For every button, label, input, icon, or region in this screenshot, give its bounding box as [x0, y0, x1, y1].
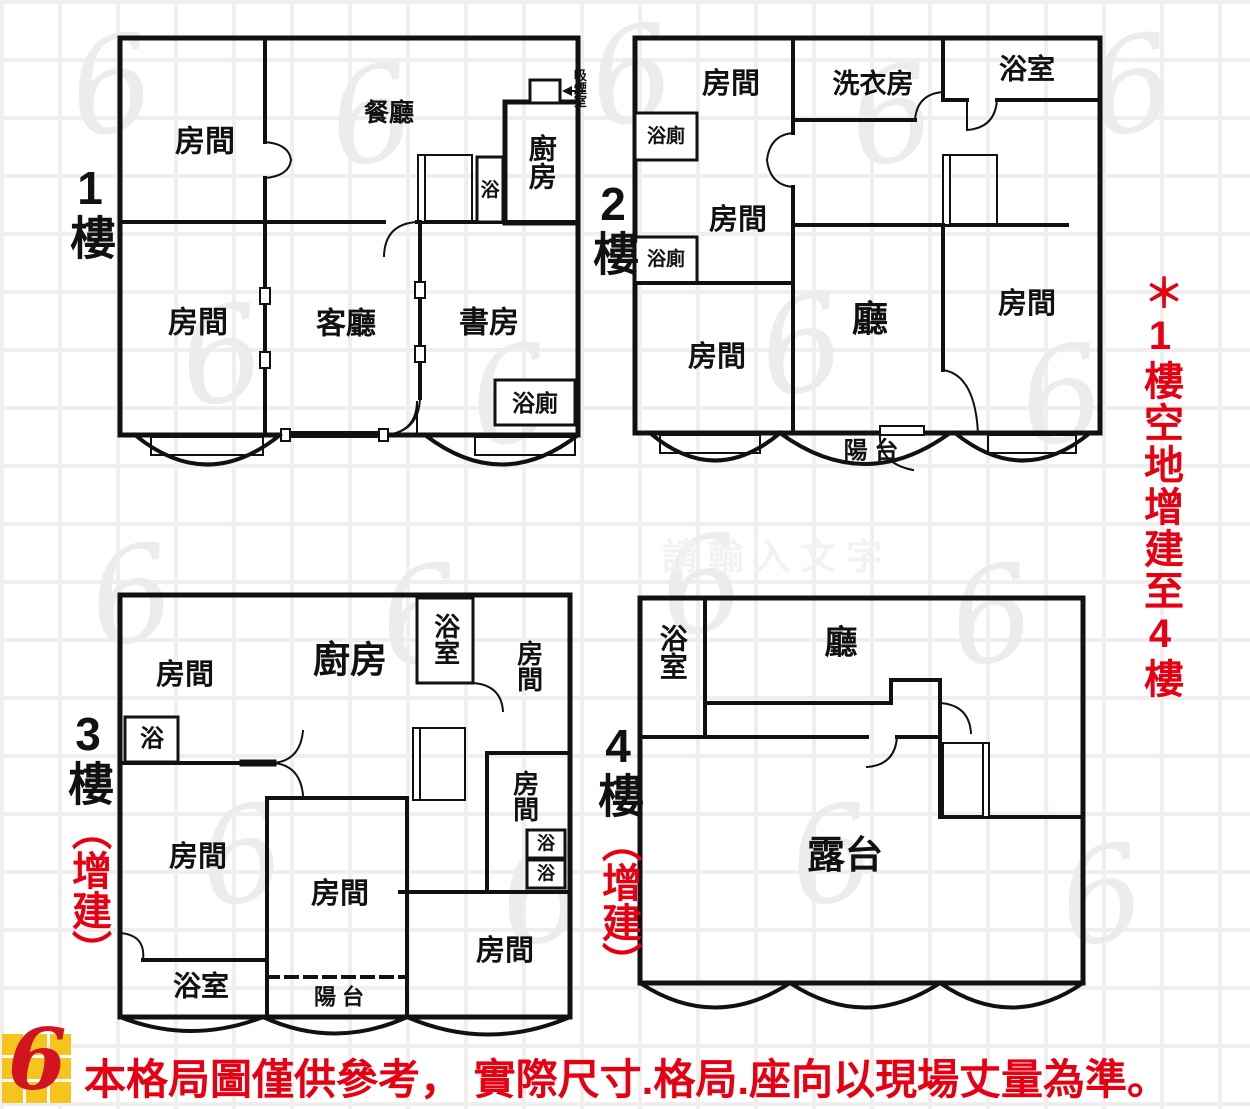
f3-bedroom-tl-label: 房間	[156, 660, 214, 690]
f3-bedroom-tr-label: 房間	[514, 640, 541, 692]
floor-2-tag: 2樓	[590, 178, 636, 276]
f1-bath-toilet-label: 浴廁	[512, 391, 558, 415]
floor-4-plan	[630, 590, 1100, 1055]
f1-dining-label: 餐廳	[364, 100, 414, 126]
logo-six-icon: 6	[8, 1018, 66, 1102]
agency-logo: 6	[2, 1034, 76, 1108]
floor-3-tag: 3樓	[65, 708, 111, 806]
f3-bedroom-c-label: 房間	[311, 879, 369, 909]
floor-2-section: 房間 洗衣房 浴室 浴廁 房間 浴廁 房間 廳 房間 陽 台	[630, 30, 1110, 495]
f2-bath-toilet-2-label: 浴廁	[647, 250, 685, 270]
floor-4-tag: 4樓	[595, 720, 641, 818]
floor-3-section: 房間 廚房 浴室 房間 浴 房間 浴 浴 房間 房間 房間 浴室 陽 台	[113, 590, 583, 1055]
f2-bedroom-tl-label: 房間	[702, 69, 760, 99]
floor-1-tag: 1樓	[67, 162, 113, 260]
f1-smoking-room-label: 吸煙室	[572, 69, 586, 108]
f2-bedroom-ml-label: 房間	[709, 205, 767, 235]
floor-1-plan	[113, 30, 603, 490]
f2-balcony-label: 陽 台	[844, 438, 899, 463]
f2-laundry-label: 洗衣房	[833, 70, 914, 98]
floorplan-page: { "page":{"accent_red":"#e60012","wall_c…	[0, 0, 1250, 1108]
center-watermark-text: 請輸入文字	[662, 528, 892, 580]
f3-balcony-label: 陽 台	[314, 985, 364, 1008]
floor-4-section: 浴室 廳 露台	[630, 590, 1100, 1055]
f3-bath-1-label: 浴	[537, 835, 555, 854]
f4-bathroom-label: 浴室	[657, 624, 686, 680]
f3-bathroom-top-label: 浴室	[431, 613, 458, 665]
f3-bedroom-br-label: 房間	[476, 936, 534, 966]
f3-bathroom-bl-label: 浴室	[173, 971, 229, 1000]
f3-bedroom-ml-label: 房間	[169, 842, 227, 872]
f3-bedroom-mr-label: 房間	[510, 770, 537, 822]
f1-study-label: 書房	[459, 307, 519, 339]
f1-bath-label: 浴	[480, 181, 499, 201]
f4-hall-label: 廳	[825, 626, 858, 661]
f2-bathroom-label: 浴室	[999, 54, 1055, 83]
f1-living-label: 客廳	[316, 308, 376, 340]
f1-kitchen-label: 廚房	[526, 134, 555, 190]
floor-1-section: 房間 餐廳 廚房 浴 吸煙室 房間 客廳 書房 浴廁	[113, 30, 603, 490]
f3-kitchen-label: 廚房	[313, 642, 387, 681]
disclaimer-text: 本格局圖僅供參考， 實際尺寸.格局.座向以現場丈量為準。	[84, 1046, 1169, 1107]
extension-side-note: ＊1樓空地增建至4樓	[1140, 272, 1180, 700]
f1-bedroom-tl-label: 房間	[175, 126, 235, 158]
f4-terrace-label: 露台	[807, 837, 883, 877]
floor-3-annex-note: （增建）	[68, 810, 108, 970]
f3-bath-2-label: 浴	[537, 865, 555, 884]
f2-bedroom-r-label: 房間	[998, 289, 1056, 319]
f2-bath-toilet-1-label: 浴廁	[647, 127, 685, 147]
f1-bedroom-bl-label: 房間	[168, 307, 228, 339]
f3-bath-left-label: 浴	[140, 726, 164, 751]
f2-hall-label: 廳	[852, 300, 888, 338]
floor-4-annex-note: （增建）	[598, 822, 638, 982]
f2-bedroom-bl-label: 房間	[688, 342, 746, 372]
